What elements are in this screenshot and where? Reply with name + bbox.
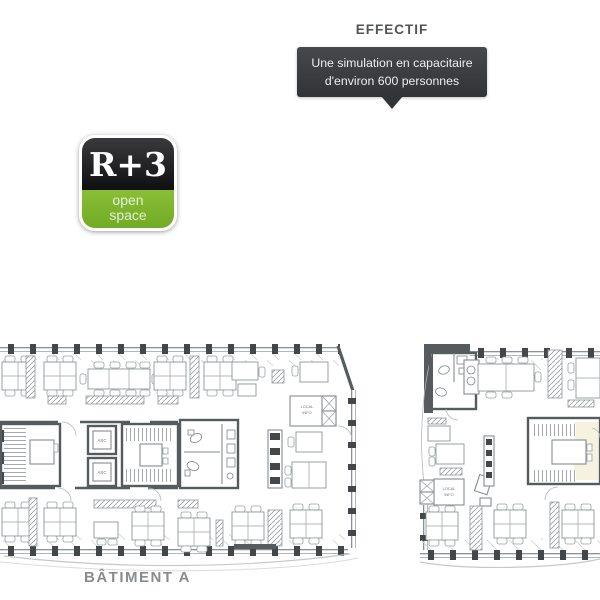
desk-cluster xyxy=(494,504,526,544)
cabinet-strip-b xyxy=(484,436,494,486)
desk-cluster xyxy=(44,356,76,396)
restroom xyxy=(180,420,238,488)
desk-cluster xyxy=(232,506,264,546)
shelving xyxy=(268,510,282,546)
desk-cluster xyxy=(132,506,164,546)
elevator-bank: ASC ASC xyxy=(88,426,116,486)
floorplan-batiment-a: ASC ASC xyxy=(0,344,358,571)
toilet xyxy=(435,387,448,398)
shelving xyxy=(26,356,35,398)
page: EFFECTIF Une simulation en capacitaire d… xyxy=(0,0,600,600)
low-cabinet xyxy=(178,500,198,508)
page-curl xyxy=(420,559,600,567)
wall-segment xyxy=(234,544,276,549)
low-cabinet xyxy=(440,468,462,475)
shelving xyxy=(190,356,199,398)
local-room-line1: LOCAL xyxy=(301,404,315,409)
desk xyxy=(94,522,118,538)
facade-east xyxy=(348,390,356,548)
stair-west xyxy=(1,424,60,486)
desk-cluster xyxy=(154,356,186,396)
desk xyxy=(238,384,256,396)
low-cabinet xyxy=(428,418,446,424)
floorplans-canvas: ASC ASC xyxy=(0,0,600,600)
building-a-label: BÂTIMENT A xyxy=(84,569,191,586)
corner-wall xyxy=(338,346,353,391)
desk-cluster xyxy=(562,504,594,544)
desk-cluster xyxy=(290,504,322,544)
desk-cluster xyxy=(426,506,458,546)
door-arc xyxy=(58,488,71,501)
sink xyxy=(227,444,235,453)
low-cabinet xyxy=(86,396,144,404)
desk-cluster xyxy=(44,502,76,542)
desk xyxy=(296,432,322,452)
shelving xyxy=(216,520,223,546)
desk xyxy=(428,426,450,441)
elevator-label: ASC xyxy=(97,438,106,443)
local-info-room: LOCAL INFO xyxy=(290,396,336,426)
local-room-line1: LOCAL xyxy=(443,486,457,491)
stair-core-b xyxy=(528,418,600,484)
door-arc xyxy=(62,422,76,436)
low-cabinet xyxy=(94,500,156,508)
toilet xyxy=(437,364,450,375)
desk-cluster xyxy=(178,512,210,552)
shelving xyxy=(470,506,482,550)
central-core: ASC ASC xyxy=(0,396,352,501)
desk xyxy=(300,362,328,382)
elevator-label: ASC xyxy=(97,470,106,475)
door-arc xyxy=(148,488,161,501)
sink xyxy=(227,458,235,467)
local-info-room-b: LOCAL INFO xyxy=(420,479,464,505)
restroom-b xyxy=(430,353,479,420)
shelving xyxy=(550,502,559,548)
shelving xyxy=(548,350,562,398)
floorplan-right-building: LOCAL INFO xyxy=(420,344,600,567)
desk xyxy=(232,362,258,380)
door-arc xyxy=(446,409,458,420)
desk xyxy=(436,444,464,464)
low-cabinet xyxy=(568,400,594,407)
low-cabinet xyxy=(158,396,178,404)
desk-cluster xyxy=(204,356,236,396)
local-room-line2: INFO xyxy=(302,410,311,415)
door-arc xyxy=(545,487,558,500)
meeting-table xyxy=(80,362,158,396)
stair-center xyxy=(122,424,178,486)
shelving xyxy=(29,498,37,546)
storage-unit xyxy=(272,370,284,383)
cabinet-strip xyxy=(268,430,282,488)
sink xyxy=(227,430,235,439)
local-room-line2: INFO xyxy=(444,492,453,497)
low-cabinet xyxy=(48,396,66,404)
